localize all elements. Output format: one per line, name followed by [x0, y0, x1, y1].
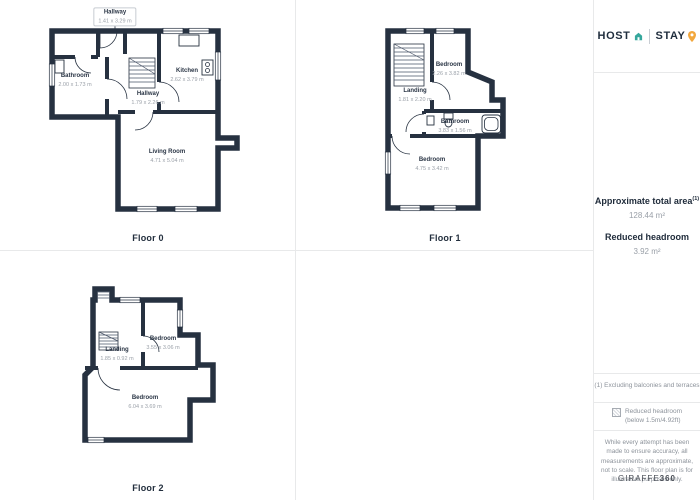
logo-divider: [649, 29, 650, 44]
room-label-living-room: Living Room 4.71 x 5.04 m: [149, 149, 185, 165]
panel-floor-2: Landing 1.85 x 0.92 m Bedroom 3.55 x 3.0…: [0, 250, 295, 500]
total-area-label: Approximate total area(1): [594, 196, 700, 206]
room-dims: 4.75 x 3.42 m: [415, 166, 448, 173]
floor-2-title: Floor 2: [132, 483, 163, 493]
logo-host-text: HOST: [598, 30, 631, 42]
room-label-kitchen: Kitchen 2.62 x 3.79 m: [170, 68, 203, 84]
reduced-headroom-value: 3.92 m²: [594, 247, 700, 256]
floor0-plan: [45, 24, 255, 224]
room-dims: 3.83 x 1.56 m: [438, 128, 471, 135]
reduced-headroom-legend: Reduced headroom (below 1.5m/4.92ft): [594, 407, 700, 425]
room-label-hallway-callout: Hallway 1.41 x 3.29 m: [93, 7, 136, 26]
room-name: Bathroom: [58, 73, 91, 81]
room-name: Bathroom: [438, 119, 471, 127]
legend-text: Reduced headroom (below 1.5m/4.92ft): [625, 407, 682, 425]
room-label-bedroom-2: Bedroom 4.75 x 3.42 m: [415, 157, 448, 173]
room-name: Bedroom: [432, 62, 465, 70]
map-pin-icon: [688, 31, 696, 42]
total-area-footnote-marker: (1): [692, 196, 699, 202]
room-dims: 4.71 x 5.04 m: [149, 158, 185, 165]
room-label-bathroom: Bathroom 2.00 x 1.73 m: [58, 73, 91, 89]
room-dims: 2.00 x 1.73 m: [58, 82, 91, 89]
panel-empty: [295, 250, 593, 500]
total-area-text: Approximate total area: [595, 196, 693, 206]
room-label-hallway: Hallway 1.79 x 2.26 m: [131, 91, 164, 107]
room-name: Landing: [398, 88, 431, 96]
panel-floor-1: Bedroom 2.26 x 3.82 m Landing 1.81 x 2.2…: [295, 0, 593, 250]
panel-floor-0: Hallway 1.41 x 3.29 m Bathroom 2.00 x 1.…: [0, 0, 295, 250]
giraffe360-brand: GIRAFFE360: [594, 474, 700, 483]
room-label-landing: Landing 1.85 x 0.92 m: [100, 347, 133, 363]
sidebar-divider: [594, 373, 700, 374]
room-dims: 1.79 x 2.26 m: [131, 100, 164, 107]
legend-label: Reduced headroom: [625, 408, 682, 415]
area-summary: Approximate total area(1) 128.44 m² Redu…: [594, 196, 700, 256]
room-label-bedroom-1: Bedroom 2.26 x 3.82 m: [432, 62, 465, 78]
brand-suffix: 360: [660, 474, 676, 483]
host-stay-logo: HOST STAY: [594, 0, 700, 72]
room-dims: 6.04 x 3.69 m: [128, 404, 161, 411]
floorplan-page: Hallway 1.41 x 3.29 m Bathroom 2.00 x 1.…: [0, 0, 700, 500]
horizontal-divider: [0, 250, 593, 251]
room-name: Bedroom: [128, 395, 161, 403]
room-label-bathroom: Bathroom 3.83 x 1.56 m: [438, 119, 471, 135]
room-dims: 1.85 x 0.92 m: [100, 356, 133, 363]
reduced-headroom-swatch-icon: [612, 408, 621, 417]
sidebar-divider: [594, 430, 700, 431]
sidebar: HOST STAY Approximate total area(1): [593, 0, 700, 500]
room-dims: 2.26 x 3.82 m: [432, 71, 465, 78]
room-name: Living Room: [149, 149, 185, 157]
room-label-bedroom-1: Bedroom 3.55 x 3.06 m: [146, 336, 179, 352]
room-name: Hallway: [131, 91, 164, 99]
room-dims: 1.41 x 3.29 m: [98, 18, 131, 25]
room-dims: 3.55 x 3.06 m: [146, 345, 179, 352]
total-area-value: 128.44 m²: [594, 211, 700, 220]
room-name: Bedroom: [146, 336, 179, 344]
room-name: Hallway: [98, 9, 131, 17]
floor-0-title: Floor 0: [132, 233, 163, 243]
logo-stay-text: STAY: [656, 30, 686, 42]
floor-1-title: Floor 1: [429, 233, 460, 243]
floor2-plan: [72, 286, 217, 481]
room-dims: 2.62 x 3.79 m: [170, 77, 203, 84]
room-name: Landing: [100, 347, 133, 355]
footnote: (1) Excluding balconies and terraces: [594, 382, 700, 389]
legend-sublabel: (below 1.5m/4.92ft): [625, 417, 681, 424]
room-name: Kitchen: [170, 68, 203, 76]
walls: [85, 289, 213, 440]
sidebar-divider: [594, 72, 700, 73]
room-label-landing: Landing 1.81 x 2.20 m: [398, 88, 431, 104]
sidebar-divider: [594, 402, 700, 403]
room-dims: 1.81 x 2.20 m: [398, 97, 431, 104]
house-icon: [634, 32, 643, 41]
brand-name: GIRAFFE: [618, 474, 660, 483]
room-name: Bedroom: [415, 157, 448, 165]
room-label-bedroom-2: Bedroom 6.04 x 3.69 m: [128, 395, 161, 411]
reduced-headroom-label: Reduced headroom: [594, 232, 700, 242]
